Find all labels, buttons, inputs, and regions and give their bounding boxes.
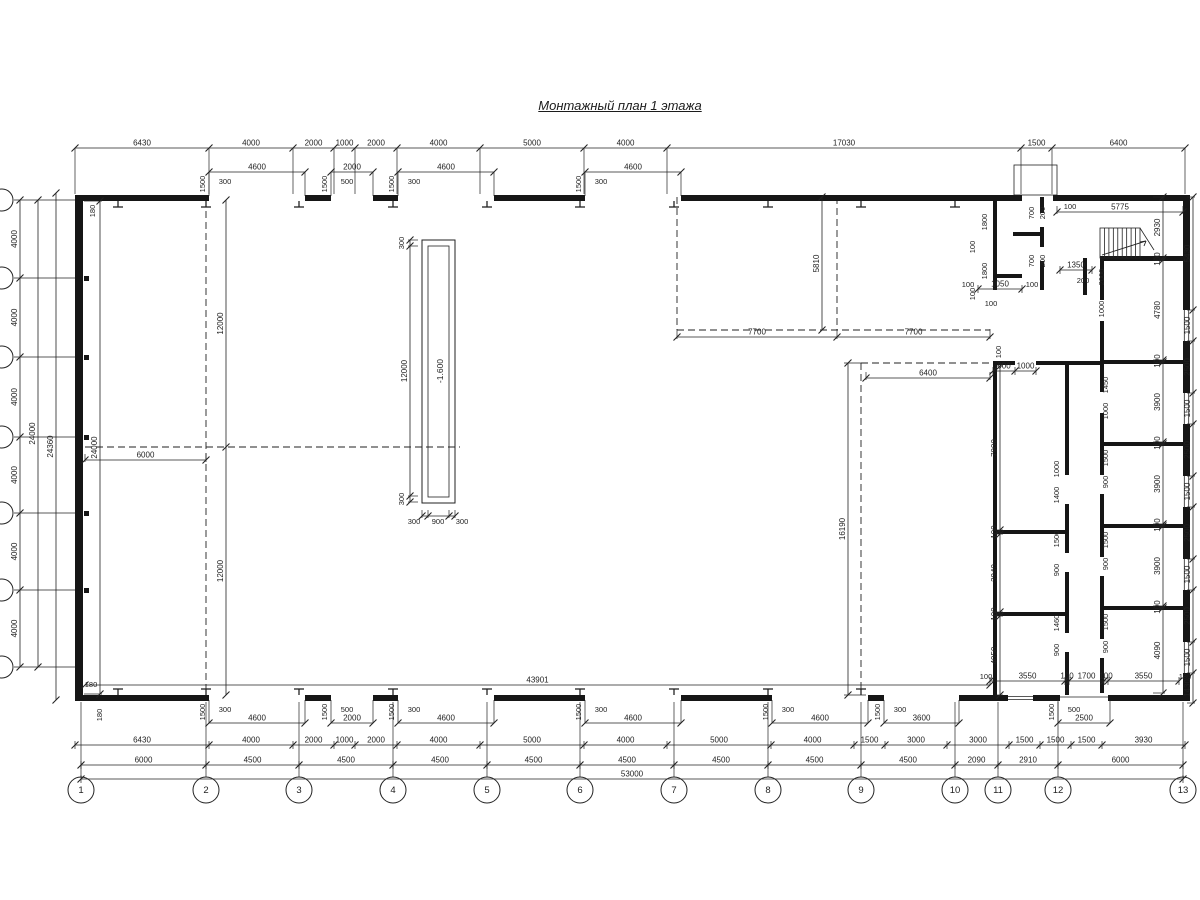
dimension-label: 200 [1077, 276, 1090, 285]
dimension-label: 1500 [873, 704, 882, 721]
dimension-label: 1500 [320, 176, 329, 193]
dimension-label: 4000 [804, 736, 822, 745]
dimension-label: 300 [456, 517, 469, 526]
pit-elevation-label: -1.600 [435, 359, 445, 383]
dimension-label: 7700 [748, 328, 766, 337]
dimension-label: 4500 [244, 756, 262, 765]
dimension-label: 300 [408, 517, 421, 526]
dimension-label: 4600 [437, 163, 455, 172]
dimension-label: 300 [408, 177, 421, 186]
dimension-label: 900 [432, 517, 445, 526]
dimension-label: 700 [1027, 255, 1036, 268]
wall-segment [1100, 256, 1183, 261]
dimension-label: 1500 [387, 176, 396, 193]
wall-segment [75, 195, 209, 201]
dimension-label: 2500 [1075, 714, 1093, 723]
dimension-label: 4000 [617, 139, 635, 148]
dimension-label: 1000 [1097, 301, 1106, 318]
dimension-label: 1500 [320, 704, 329, 721]
dimension-label: 1500 [1183, 565, 1192, 583]
dimension-label: 180 [1179, 672, 1192, 681]
axis-bubble [0, 502, 13, 524]
dimension-label: 5810 [812, 254, 821, 272]
axis-number: 6 [577, 785, 582, 796]
dimension-label: 5775 [1111, 203, 1129, 212]
dimension-label: 4500 [806, 756, 824, 765]
dimension-label: 12000 [216, 559, 225, 582]
axis-number: 12 [1053, 785, 1064, 796]
axis-number: 11 [993, 785, 1003, 796]
dimension-label: 2000 [305, 139, 323, 148]
dimension-label: 1450 [1101, 377, 1110, 394]
wall-segment [1040, 227, 1044, 247]
dimension-label: 6000 [135, 756, 153, 765]
dimension-label: 1350 [1067, 261, 1085, 270]
dimension-label: 100 [1064, 202, 1077, 211]
wall-segment [1100, 360, 1183, 364]
dimension-label: 500 [1068, 705, 1081, 714]
dimension-label: 43901 [526, 676, 549, 685]
dimension-label: 1000 [1052, 461, 1061, 478]
dimension-label: 1500 [574, 704, 583, 721]
dimension-label: 4000 [242, 139, 260, 148]
dimension-label: 100 [980, 672, 993, 681]
axis-bubble [0, 189, 13, 211]
dimension-label: 2000 [367, 139, 385, 148]
dimension-label: 4600 [811, 714, 829, 723]
dimension-label: 3550 [1019, 672, 1037, 681]
wall-segment [373, 695, 398, 701]
dimension-label: 5430 [1183, 244, 1192, 262]
dimension-label: 6430 [133, 139, 151, 148]
dimension-label: 1000 [336, 139, 354, 148]
dimension-label: 1500 [1183, 316, 1192, 334]
dimension-label: 1500 [1016, 736, 1034, 745]
dimension-label: 24000 [28, 422, 37, 445]
wall-segment [1065, 363, 1069, 475]
dimension-label: 6000 [137, 451, 155, 460]
dimension-label: 24360 [46, 435, 55, 458]
dimension-label: 700 [1027, 207, 1036, 220]
dimension-label: 4600 [437, 714, 455, 723]
wall-segment [1053, 195, 1190, 201]
walls [75, 195, 1190, 701]
dimension-label: 180 [85, 680, 98, 689]
dimension-label: 1500 [1047, 704, 1056, 721]
dimension-label: 100 [994, 346, 1003, 359]
dimension-label: 4600 [248, 714, 266, 723]
dimension-label: 1500 [1101, 532, 1110, 549]
dimension-label: 300 [397, 237, 406, 250]
dimension-label: 4000 [10, 308, 19, 326]
dimension-label: 6430 [133, 736, 151, 745]
dimension-label: 4000 [430, 139, 448, 148]
entrance-vestibule [1014, 165, 1057, 195]
wall-segment [1100, 606, 1183, 610]
column-mark [84, 276, 89, 281]
dimension-label: 5000 [523, 736, 541, 745]
axis-number: 3 [296, 785, 301, 796]
column-mark [84, 435, 89, 440]
dashed-reference-lines [85, 197, 990, 695]
dimension-label: 4000 [10, 466, 19, 484]
dimension-label: 24000 [90, 436, 99, 459]
column-mark [84, 355, 89, 360]
axis-number: 9 [858, 785, 863, 796]
wall-segment [868, 695, 884, 701]
dimension-label: 1500 [387, 704, 396, 721]
dimension-label: 3900 [1153, 475, 1162, 493]
dimension-label: 100 [968, 241, 977, 254]
dimension-label: 900 [1052, 564, 1061, 577]
axis-bubble: 5 [474, 777, 500, 803]
dimension-label: 1000 [1101, 403, 1110, 420]
axis-bubble [0, 426, 13, 448]
dimension-label: 16190 [838, 517, 847, 540]
dimension-label: 4500 [618, 756, 636, 765]
dimension-label: 1500 [1101, 614, 1110, 631]
dimension-label: 300 [595, 177, 608, 186]
wall-segment [494, 695, 585, 701]
dimension-label: 1460 [1052, 615, 1061, 632]
dimension-label: 1430 [1183, 679, 1192, 697]
axis-number: 5 [484, 785, 489, 796]
dimension-label: 4500 [899, 756, 917, 765]
dimension-label: 7900 [990, 439, 999, 457]
dimension-label: 6400 [1110, 139, 1128, 148]
stairs [1100, 228, 1154, 258]
dimension-label: 1800 [980, 263, 989, 280]
axis-number: 1 [78, 785, 83, 796]
dimension-label: 300 [408, 705, 421, 714]
dimension-label: 12000 [400, 359, 409, 382]
axis-bubble [0, 656, 13, 678]
dimension-label: 100 [1153, 436, 1162, 450]
dimension-label: 3600 [913, 714, 931, 723]
dimension-label: 2500 [1183, 607, 1192, 625]
dimension-label: 4000 [430, 736, 448, 745]
dimension-label: 2000 [305, 736, 323, 745]
dimension-label: 100 [962, 280, 975, 289]
dimension-label: 2000 [343, 714, 361, 723]
dimension-label: 6000 [1112, 756, 1130, 765]
wall-segment [959, 695, 1008, 701]
dimension-label: 2930 [1153, 218, 1162, 236]
floor-plan-drawing: -1.6006430400020001000200040005000400017… [0, 0, 1200, 900]
wall-segment [681, 195, 1022, 201]
dimension-label: 100 [1153, 354, 1162, 368]
dimension-label: 900 [1101, 476, 1110, 489]
dimension-label: 180 [88, 205, 97, 218]
dimension-label: 3000 [907, 736, 925, 745]
dimension-label: 3940 [990, 564, 999, 582]
dimension-label: 1500 [198, 176, 207, 193]
dimension-label: 1500 [1047, 736, 1065, 745]
wall-segment [681, 695, 772, 701]
wall-segment [1013, 232, 1040, 236]
axis-bubble: 2 [193, 777, 219, 803]
dimension-label: 53000 [621, 770, 644, 779]
axis-bubble: 11 [985, 777, 1011, 803]
dimension-label: 300 [397, 493, 406, 506]
dimension-label: 1500 [1183, 399, 1192, 417]
dimension-label: 4500 [712, 756, 730, 765]
wall-segment [1100, 442, 1183, 446]
axis-number: 13 [1178, 785, 1189, 796]
dimension-label: 100 [990, 525, 999, 539]
axis-bubble [0, 346, 13, 368]
dimension-label: 1500 [1183, 648, 1192, 666]
dimension-label: 1500 [761, 704, 770, 721]
axis-bubble [0, 579, 13, 601]
dimension-label: 100 [968, 288, 977, 301]
dimension-label: 4000 [10, 619, 19, 637]
dimension-label: 1500 [1052, 531, 1061, 548]
dimension-label: 2500 [1183, 441, 1192, 459]
pit: -1.600 [422, 240, 455, 503]
left-axis-bubbles [0, 189, 75, 678]
dimension-label: 1400 [1052, 487, 1061, 504]
dimension-label: 900 [1052, 644, 1061, 657]
dimension-label: 900 [1101, 558, 1110, 571]
dimension-label: 17030 [833, 139, 856, 148]
axis-number: 7 [671, 785, 676, 796]
dimension-label: 100 [1153, 252, 1162, 266]
dimension-label: 300 [219, 177, 232, 186]
dimension-label: 300 [782, 705, 795, 714]
axis-bubble: 3 [286, 777, 312, 803]
dimension-label: 6400 [919, 369, 937, 378]
dimension-label: 100 [1026, 280, 1039, 289]
dimension-label: 4600 [624, 714, 642, 723]
axis-number: 8 [765, 785, 770, 796]
dimension-texts: 1801801801800100180010010070020070020010… [85, 202, 1192, 721]
dimension-label: 12000 [216, 312, 225, 335]
axis-bubble: 4 [380, 777, 406, 803]
axis-bubble: 10 [942, 777, 968, 803]
dimension-label: 1500 [861, 736, 879, 745]
dimension-label: 3900 [1153, 557, 1162, 575]
dimension-label: 4500 [525, 756, 543, 765]
dimension-label: 3900 [1153, 393, 1162, 411]
dimension-label: 1500 [1078, 736, 1096, 745]
axis-number: 4 [390, 785, 395, 796]
dimension-label: 4090 [1153, 641, 1162, 659]
wall-segment [373, 195, 398, 201]
wall-segment [305, 695, 331, 701]
dimension-label: 4600 [248, 163, 266, 172]
wall-segment [1065, 572, 1069, 633]
wall-segment [1108, 695, 1190, 701]
axis-bubble: 7 [661, 777, 687, 803]
wall-segment [494, 195, 585, 201]
dimension-label: 3550 [1135, 672, 1153, 681]
dimension-label: 180 [95, 709, 104, 722]
dimension-label: 300 [219, 705, 232, 714]
floor-plan-sheet: Монтажный план 1 этажа -1.60064304000200… [0, 0, 1200, 900]
dimension-label: 100 [1060, 672, 1074, 681]
wall-segment [1065, 504, 1069, 553]
dimension-label: 200 [1038, 255, 1047, 268]
dimension-label: 1000 [336, 736, 354, 745]
dimension-label: 1500 [574, 176, 583, 193]
axis-number: 2 [203, 785, 208, 796]
axis-bubble: 12 [1045, 777, 1071, 803]
dimension-label: 4500 [431, 756, 449, 765]
dimension-label: 2000 [1097, 269, 1106, 286]
wall-segment [305, 195, 331, 201]
dimension-label: 300 [894, 705, 907, 714]
dimension-label: 5000 [523, 139, 541, 148]
dimension-label: 2000 [343, 163, 361, 172]
dimension-label: 500 [341, 177, 354, 186]
dimension-label: 2090 [968, 756, 986, 765]
dimension-label: 2910 [1019, 756, 1037, 765]
dimension-label: 1500 [1183, 482, 1192, 500]
dimension-label: 1000 [1017, 362, 1035, 371]
dimension-label: 3000 [969, 736, 987, 745]
column-mark [84, 588, 89, 593]
dimension-label: 1050 [991, 280, 1009, 289]
dimension-label: 5000 [710, 736, 728, 745]
dimension-label: 100 [1153, 518, 1162, 532]
dimension-label: 900 [1101, 641, 1110, 654]
wall-segment [1036, 361, 1100, 365]
dimension-label: 4000 [10, 542, 19, 560]
column-mark [84, 511, 89, 516]
axis-bubble: 8 [755, 777, 781, 803]
dimension-label: 1500 [1028, 139, 1046, 148]
dimension-label: 2500 [1183, 358, 1192, 376]
column-symbols [84, 201, 960, 695]
dimension-label: 100 [985, 299, 998, 308]
wall-segment [993, 274, 1022, 278]
dimension-label: 7700 [905, 328, 923, 337]
wall-segment [1100, 524, 1183, 528]
dimension-label: 4000 [242, 736, 260, 745]
dimension-label: 4500 [337, 756, 355, 765]
dimension-label: 1700 [1078, 672, 1096, 681]
dimension-label: 2500 [1183, 524, 1192, 542]
thin-lines [1014, 165, 1108, 697]
axis-bubble: 6 [567, 777, 593, 803]
dimension-label: 4000 [617, 736, 635, 745]
dimension-label: 4000 [10, 388, 19, 406]
dimension-label: 100 [1153, 600, 1162, 614]
dimension-label: 4050 [990, 646, 999, 664]
dimension-label: 100 [990, 607, 999, 621]
dimension-label: 4780 [1153, 301, 1162, 319]
dimension-label: 100 [1099, 672, 1113, 681]
dimension-label: 1800 [980, 214, 989, 231]
dimension-label: 3930 [1135, 736, 1153, 745]
wall-segment [75, 195, 83, 701]
dimension-label: 1500 [1101, 450, 1110, 467]
axis-bubble [0, 267, 13, 289]
wall-segment [75, 695, 209, 701]
dimension-label: 300 [595, 705, 608, 714]
dimension-label: 4000 [10, 230, 19, 248]
dimension-label: 2000 [367, 736, 385, 745]
axis-bubble: 9 [848, 777, 874, 803]
wall-segment [1033, 695, 1060, 701]
dimension-label: 200 [1038, 207, 1047, 220]
axis-number: 10 [950, 785, 961, 796]
dimension-label: 4600 [624, 163, 642, 172]
dimension-label: 500 [341, 705, 354, 714]
